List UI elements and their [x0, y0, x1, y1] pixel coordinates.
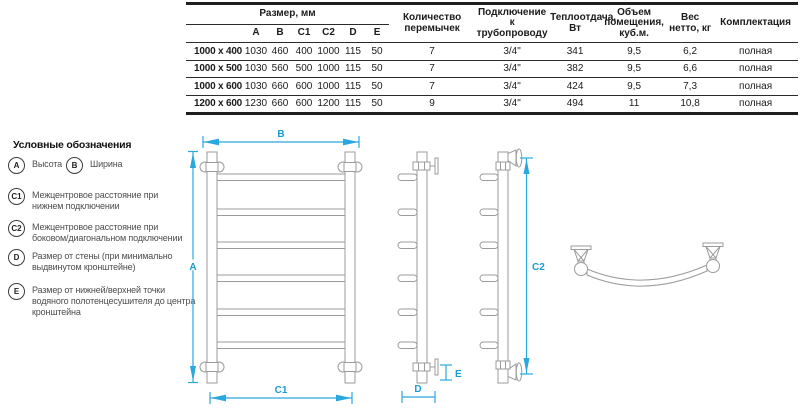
table-cell: полная: [713, 78, 798, 96]
model-cell: 1000 x 400: [186, 43, 244, 61]
legend-key-c2-icon: C2: [8, 220, 25, 237]
legend-label: Межцентровое расстояние при нижнем подкл…: [32, 188, 172, 212]
table-cell: 115: [341, 60, 365, 78]
legend-key-b-icon: B: [66, 157, 83, 174]
size-group-header: Размер, мм: [186, 4, 389, 25]
model-cell: 1000 x 500: [186, 60, 244, 78]
table-row: 1000 x 600 1030 660 600 1000 115 50 7 3/…: [186, 78, 798, 96]
dim-label-a: A: [189, 262, 196, 273]
table-cell: 560: [268, 60, 292, 78]
side-view-drawing: E D: [398, 152, 462, 403]
table-cell: 3/4": [475, 43, 549, 61]
table-cell: 6,2: [667, 43, 713, 61]
table-cell: 1200: [316, 95, 341, 114]
model-cell: 1200 x 600: [186, 95, 244, 114]
table-cell: 1030: [244, 60, 268, 78]
table-cell: 115: [341, 43, 365, 61]
legend: Условные обозначения A Высота B Ширина C…: [8, 139, 192, 319]
dim-c1: C1: [210, 385, 352, 404]
dim-label-e: E: [455, 369, 462, 380]
col-header-volume: Объем помещения, куб.м.: [601, 4, 667, 43]
table-header: Размер, мм Количество перемычек Подключе…: [186, 4, 798, 43]
table-cell: 382: [549, 60, 601, 78]
table-cell: 9,5: [601, 78, 667, 96]
curved-bar: [587, 265, 707, 286]
table-cell: 7: [389, 60, 475, 78]
table-cell: 9: [389, 95, 475, 114]
dim-e: E: [440, 365, 462, 380]
table-row: 1000 x 500 1030 560 500 1000 115 50 7 3/…: [186, 60, 798, 78]
side-tabs-2: [480, 174, 498, 349]
table-cell: 424: [549, 78, 601, 96]
table-cell: 400: [292, 43, 316, 61]
wall-brackets: [200, 162, 362, 372]
table-cell: 11: [601, 95, 667, 114]
col-header-b: B: [268, 25, 292, 43]
table-cell: полная: [713, 60, 798, 78]
col-header-model: [186, 25, 244, 43]
table-cell: 660: [268, 78, 292, 96]
table-cell: 660: [268, 95, 292, 114]
table-cell: полная: [713, 43, 798, 61]
table-cell: 50: [365, 43, 389, 61]
side-tabs: [398, 174, 417, 349]
side-view-c2-drawing: C2: [480, 149, 545, 383]
table-cell: 1030: [244, 78, 268, 96]
table-cell: 115: [341, 78, 365, 96]
dim-label-d: D: [414, 384, 421, 395]
table-cell: 3/4": [475, 78, 549, 96]
legend-label: Размер от нижней/верхней точки водяного …: [32, 283, 198, 318]
table-cell: 50: [365, 95, 389, 114]
col-header-weight: Вес нетто, кг: [667, 4, 713, 43]
col-header-set: Комплектация: [713, 4, 798, 43]
side-post: [417, 152, 427, 383]
table-cell: 1000: [316, 78, 341, 96]
legend-label: Размер от стены (при минимально выдвинут…: [32, 249, 198, 273]
legend-item-d: D Размер от стены (при минимально выдвин…: [8, 249, 198, 273]
legend-label: Межцентровое расстояние при боковом/диаг…: [32, 220, 192, 244]
table-cell: 7: [389, 78, 475, 96]
dim-label-c1: C1: [275, 385, 288, 396]
table-row: 1000 x 400 1030 460 400 1000 115 50 7 3/…: [186, 43, 798, 61]
table-cell: 1230: [244, 95, 268, 114]
legend-key-e-icon: E: [8, 283, 25, 300]
table-row: 1200 x 600 1230 660 600 1200 115 50 9 3/…: [186, 95, 798, 114]
table-cell: 1000: [316, 60, 341, 78]
table-cell: 10,8: [667, 95, 713, 114]
table-cell: 6,6: [667, 60, 713, 78]
table-cell: 460: [268, 43, 292, 61]
dim-a: A: [188, 152, 198, 383]
table-cell: 3/4": [475, 95, 549, 114]
legend-label: Ширина: [90, 157, 140, 170]
side-post-2: [498, 152, 508, 383]
legend-title: Условные обозначения: [13, 139, 192, 151]
table-cell: 494: [549, 95, 601, 114]
single-rail-drawing: [571, 243, 723, 286]
table-cell: 341: [549, 43, 601, 61]
table-cell: 9,5: [601, 43, 667, 61]
legend-item-c1: C1 Межцентровое расстояние при нижнем по…: [8, 188, 172, 212]
legend-item-a: A Высота: [8, 157, 72, 174]
model-cell: 1000 x 600: [186, 78, 244, 96]
dim-b: B: [203, 129, 359, 148]
spec-table: Размер, мм Количество перемычек Подключе…: [186, 2, 798, 115]
legend-item-b: B Ширина: [66, 157, 140, 174]
col-header-a: A: [244, 25, 268, 43]
col-header-heat: Теплоотдача, Вт: [549, 4, 601, 43]
technical-drawings: B A: [185, 125, 800, 412]
col-header-c1: C1: [292, 25, 316, 43]
table-cell: 50: [365, 60, 389, 78]
datasheet-page: { "colors": { "accent_blue": "#29a8df", …: [0, 0, 800, 412]
col-header-c2: C2: [316, 25, 341, 43]
dim-label-c2: C2: [532, 262, 545, 273]
front-view-drawing: B A: [188, 129, 362, 404]
dim-c2: C2: [520, 158, 545, 374]
table-cell: 3/4": [475, 60, 549, 78]
table-cell: 7: [389, 43, 475, 61]
legend-key-d-icon: D: [8, 249, 25, 266]
col-header-d: D: [341, 25, 365, 43]
table-cell: 1030: [244, 43, 268, 61]
table-cell: полная: [713, 95, 798, 114]
legend-item-c2: C2 Межцентровое расстояние при боковом/д…: [8, 220, 192, 244]
table-cell: 600: [292, 95, 316, 114]
dim-label-b: B: [277, 129, 284, 140]
rungs: [217, 174, 345, 349]
table-cell: 9,5: [601, 60, 667, 78]
table-cell: 600: [292, 78, 316, 96]
legend-item-e: E Размер от нижней/верхней точки водяног…: [8, 283, 198, 318]
table-cell: 115: [341, 95, 365, 114]
left-post: [207, 152, 217, 383]
legend-key-c1-icon: C1: [8, 188, 25, 205]
table-cell: 7,3: [667, 78, 713, 96]
dim-d: D: [402, 384, 435, 403]
col-header-connection: Подключение к трубопроводу: [475, 4, 549, 43]
table-cell: 500: [292, 60, 316, 78]
col-header-jumpers: Количество перемычек: [389, 4, 475, 43]
legend-key-a-icon: A: [8, 157, 25, 174]
table-cell: 1000: [316, 43, 341, 61]
table-cell: 50: [365, 78, 389, 96]
right-post: [345, 152, 355, 383]
col-header-e: E: [365, 25, 389, 43]
